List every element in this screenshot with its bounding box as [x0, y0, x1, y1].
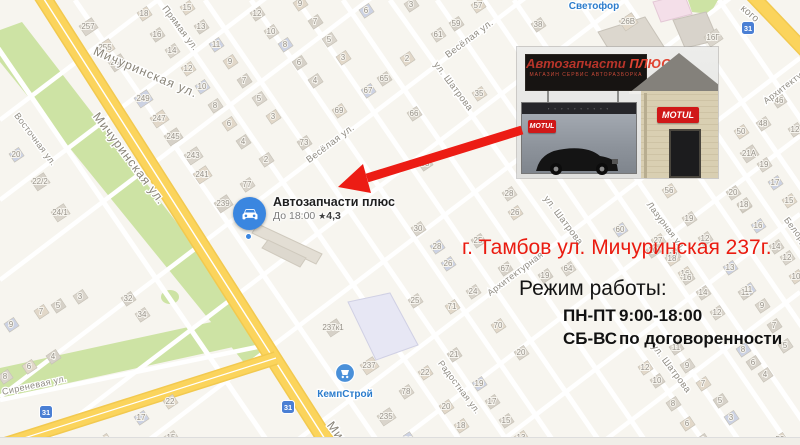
house-number: 9 [685, 361, 690, 370]
house-number: 32 [124, 294, 133, 303]
motul-building-sign: MOTUL [657, 107, 699, 123]
house-number: 20 [729, 188, 738, 197]
house-number: 35 [475, 89, 484, 98]
house-number: 73 [300, 138, 309, 147]
house-number: 56 [665, 186, 674, 195]
house-number: 57 [474, 1, 483, 10]
house-number: 15 [183, 3, 192, 12]
house-number: 8 [283, 40, 288, 49]
house-number: 237 [362, 361, 376, 370]
house-number: 59 [452, 19, 461, 28]
house-number: 10 [267, 27, 276, 36]
house-number: 243 [186, 151, 200, 160]
house-number: 21А [742, 149, 757, 158]
drain-pipe [644, 93, 647, 178]
marker-pin[interactable] [233, 197, 266, 230]
house-number: 26 [511, 208, 520, 217]
map-bottom-edge [0, 437, 800, 445]
marker-subtitle: До 18:00 ★4,3 [273, 210, 395, 222]
house-number: 13 [197, 22, 206, 31]
house-number: 16 [754, 221, 763, 230]
house-number: 64 [564, 264, 573, 273]
house-number: 19 [685, 214, 694, 223]
house-number: 66 [410, 109, 419, 118]
house-number: 7 [39, 307, 44, 316]
house-number: 5 [783, 341, 788, 350]
house-number: 22/2 [32, 177, 48, 186]
house-number: 7 [242, 76, 247, 85]
house-number: 20 [517, 348, 526, 357]
schedule-row-weekdays: ПН-ПТ9:00-18:00 [563, 306, 702, 326]
schedule-value: 9:00-18:00 [619, 306, 702, 325]
house-number: 4 [313, 76, 318, 85]
house-number: 5 [56, 301, 61, 310]
house-number: 8 [3, 372, 8, 381]
schedule-value: по договоренности [619, 329, 782, 348]
house-number: 9 [9, 320, 14, 329]
house-number: 6 [297, 58, 302, 67]
house-number: 18 [457, 421, 466, 430]
cart-wheel [342, 376, 344, 378]
house-number: 61 [434, 30, 443, 39]
house-number: 17 [137, 413, 146, 422]
poi-label[interactable]: Светофор [569, 0, 619, 12]
house-number: 6 [227, 119, 232, 128]
house-number: 20 [12, 150, 21, 159]
house-number: 15 [502, 416, 511, 425]
house-number: 18 [140, 9, 149, 18]
house-number: 5 [257, 94, 262, 103]
house-number: 17 [488, 397, 497, 406]
marker-title[interactable]: Автозапчасти плюс [273, 195, 395, 209]
house-number: 12 [184, 64, 193, 73]
house-number: 14 [168, 46, 177, 55]
route-shield-label: 31 [744, 24, 752, 33]
house-number: 9 [228, 57, 233, 66]
house-number: 28 [505, 189, 514, 198]
house-number: 28 [433, 242, 442, 251]
house-number: 19 [475, 379, 484, 388]
house-number: 10 [792, 272, 800, 281]
house-number: 34 [138, 310, 147, 319]
house-number: 4 [241, 137, 246, 146]
house-number: 16 [683, 273, 692, 282]
house-number: 3 [78, 292, 83, 301]
house-number: 38 [534, 20, 543, 29]
house-number: 26В [621, 17, 635, 26]
house-number: 26 [444, 259, 453, 268]
house-number: 15 [785, 196, 794, 205]
schedule-days: СБ-ВС [563, 329, 619, 349]
marker-hours: До 18:00 [273, 210, 315, 222]
house-number: 12 [783, 253, 792, 262]
house-number: 48 [759, 119, 768, 128]
house-number: 17 [771, 178, 780, 187]
house-number: 241 [195, 170, 209, 179]
house-number: 6 [27, 362, 32, 371]
marker-rating: 4,3 [326, 210, 341, 222]
house-number: 4 [763, 370, 768, 379]
house-number: 70 [494, 321, 503, 330]
house-number: 9 [298, 0, 303, 8]
house-number: 77 [243, 180, 252, 189]
house-number: 50 [737, 127, 746, 136]
house-number: 16Г [706, 33, 720, 42]
house-number: 12 [713, 308, 722, 317]
house-number: 12 [253, 9, 262, 18]
house-number: 13 [726, 263, 735, 272]
car-icon [238, 202, 262, 226]
house-number: 33 [421, 159, 430, 168]
storefront-photo: Автозапчасти ПЛЮС МАГАЗИН СЕРВИС АВТОРАЗ… [517, 47, 718, 178]
marker-anchor-dot [245, 233, 252, 240]
address-annotation: г. Тамбов ул. Мичуринская 237г. [462, 236, 772, 260]
house-number: 11 [744, 285, 753, 294]
house-number: 22 [166, 397, 175, 406]
route-shield-label: 31 [284, 403, 292, 412]
house-number: 2 [264, 155, 269, 164]
house-number: 3 [409, 0, 414, 9]
house-number: 239 [216, 199, 230, 208]
house-number: 7 [313, 17, 318, 26]
house-number: 235 [379, 412, 393, 421]
house-number: 20 [442, 402, 451, 411]
house-number: 25 [411, 296, 420, 305]
house-number: 24 [469, 287, 478, 296]
house-number: 65 [380, 74, 389, 83]
store-sign-title: Автозапчасти [526, 56, 626, 71]
house-number: 18 [740, 200, 749, 209]
house-number: 12 [641, 363, 650, 372]
house-number: 21 [450, 350, 459, 359]
house-number: 30 [414, 224, 423, 233]
house-number: 249 [136, 94, 150, 103]
schedule-days: ПН-ПТ [563, 306, 619, 326]
house-number: 8 [671, 399, 676, 408]
house-number: 14 [772, 242, 781, 251]
poi-label[interactable]: КемпСтрой [317, 389, 372, 400]
house-number: 12 [791, 125, 800, 134]
cart-wheel [346, 376, 348, 378]
house-number: 6 [364, 6, 369, 15]
house-number: 5 [718, 396, 723, 405]
house-number: 69 [335, 106, 344, 115]
building-roof [629, 53, 718, 93]
house-number: 257 [81, 22, 95, 31]
building-door [669, 129, 701, 178]
house-number: 3 [729, 413, 734, 422]
house-number: 4 [51, 352, 56, 361]
house-number: 16 [153, 30, 162, 39]
house-number: 5 [327, 35, 332, 44]
house-number: 67 [364, 86, 373, 95]
house-number: 247 [152, 114, 166, 123]
schedule-row-weekend: СБ-ВСпо договоренности [563, 329, 782, 349]
banner-brand-strip: ◦ ◦ ◦ ◦ ◦ ◦ ◦ ◦ ◦ ◦ [522, 103, 636, 114]
map-screenshot: 257255253249247245243241239772022/224/11… [0, 0, 800, 445]
house-number: 22 [421, 368, 430, 377]
house-number: 237к1 [322, 323, 344, 332]
house-number: 8 [213, 101, 218, 110]
house-number: 7 [701, 379, 706, 388]
house-number: 2 [405, 54, 410, 63]
house-number: 6 [685, 419, 690, 428]
house-number: 60 [616, 225, 625, 234]
house-number: 6 [751, 358, 756, 367]
house-number: 71 [448, 302, 457, 311]
house-number: 9 [760, 301, 765, 310]
store-sign-subtitle: МАГАЗИН СЕРВИС АВТОРАЗБОРКА [526, 72, 646, 78]
car-banner: ◦ ◦ ◦ ◦ ◦ ◦ ◦ ◦ ◦ ◦ MOTUL [521, 102, 637, 174]
house-number: 19 [760, 160, 769, 169]
schedule-heading: Режим работы: [519, 277, 667, 301]
house-number: 3 [341, 53, 346, 62]
house-number: 78 [402, 387, 411, 396]
house-number: 245 [166, 132, 180, 141]
car-silhouette [524, 129, 636, 175]
house-number: 24/1 [52, 208, 68, 217]
house-number: 10 [653, 376, 662, 385]
route-shield-label: 31 [42, 408, 50, 417]
house-number: 11 [212, 40, 221, 49]
house-number: 3 [271, 112, 276, 121]
house-number: 14 [699, 288, 708, 297]
